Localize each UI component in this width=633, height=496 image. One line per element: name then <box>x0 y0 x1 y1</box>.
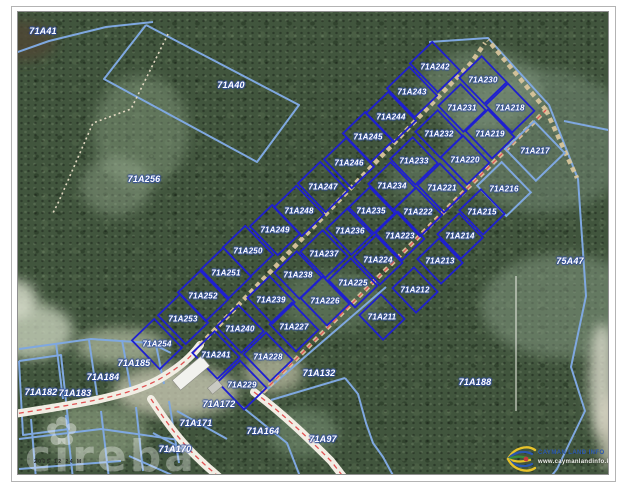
cadastral-map-screenshot: 71A4171A4071A25675A4771A13271A18871A9771… <box>0 0 633 496</box>
logo-text-line1: CAYMAN LAND INFO <box>538 450 605 456</box>
cireba-watermark: cireba <box>25 431 197 475</box>
logo-text-line2: www.caymanlandinfo.ky <box>538 459 609 465</box>
overlay-layer: ✿ cireba 2005 12 24 M CAYMAN LAND INFO <box>17 11 609 475</box>
scale-text: 2005 12 24 M <box>34 459 83 465</box>
cayman-land-info-logo: CAYMAN LAND INFO www.caymanlandinfo.ky <box>504 443 608 475</box>
map-canvas: 71A4171A4071A25675A4771A13271A18871A9771… <box>17 11 609 475</box>
swirl-logo-icon <box>504 443 538 475</box>
